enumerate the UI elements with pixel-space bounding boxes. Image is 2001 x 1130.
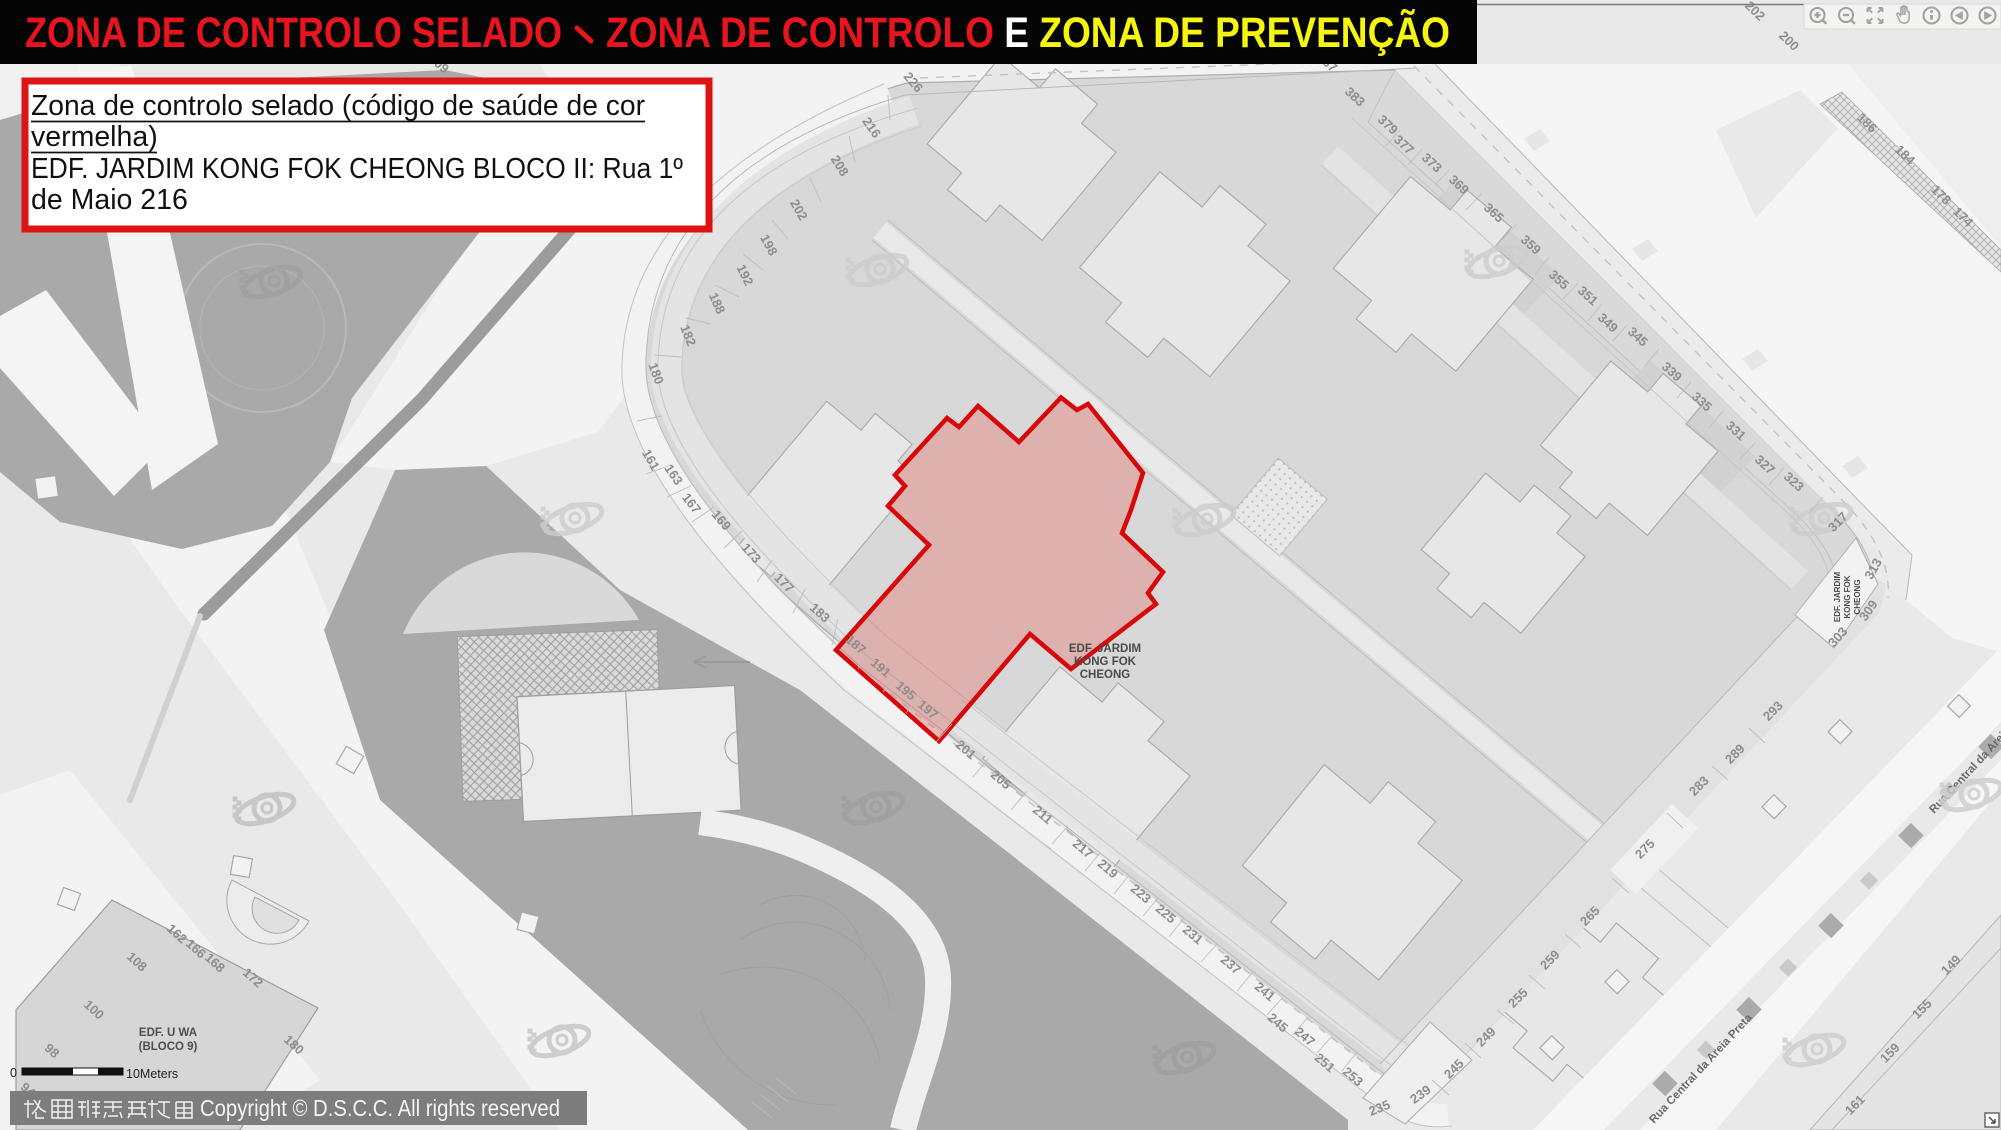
- svg-text:Zona de controlo selado (códig: Zona de controlo selado (código de saúde…: [31, 90, 646, 122]
- svg-text:Copyright © D.S.C.C. All right: Copyright © D.S.C.C. All rights reserved: [200, 1095, 560, 1121]
- svg-text:de Maio 216: de Maio 216: [31, 184, 188, 216]
- svg-text:ZONA DE CONTROLO SELADO: ZONA DE CONTROLO SELADO: [25, 9, 562, 57]
- svg-text:EDF. U WA: EDF. U WA: [139, 1027, 197, 1039]
- svg-text:(BLOCO 9): (BLOCO 9): [139, 1041, 198, 1053]
- svg-text:KONG FOK: KONG FOK: [1843, 575, 1852, 618]
- svg-text:EDF. JARDIM KONG FOK CHEONG BL: EDF. JARDIM KONG FOK CHEONG BLOCO II: Ru…: [31, 153, 684, 185]
- svg-text:EDF. JARDIM: EDF. JARDIM: [1069, 643, 1141, 655]
- svg-text:EDF. JARDIM: EDF. JARDIM: [1833, 572, 1842, 623]
- svg-text:10Meters: 10Meters: [126, 1067, 178, 1081]
- svg-text:0: 0: [10, 1066, 17, 1080]
- svg-text:ZONA DE CONTROLO E ZONA DE PRE: ZONA DE CONTROLO E ZONA DE PREVENÇÃO: [606, 9, 1450, 57]
- svg-text:CHEONG: CHEONG: [1080, 669, 1131, 681]
- svg-text:KONG FOK: KONG FOK: [1074, 656, 1137, 668]
- svg-text:vermelha): vermelha): [31, 121, 158, 153]
